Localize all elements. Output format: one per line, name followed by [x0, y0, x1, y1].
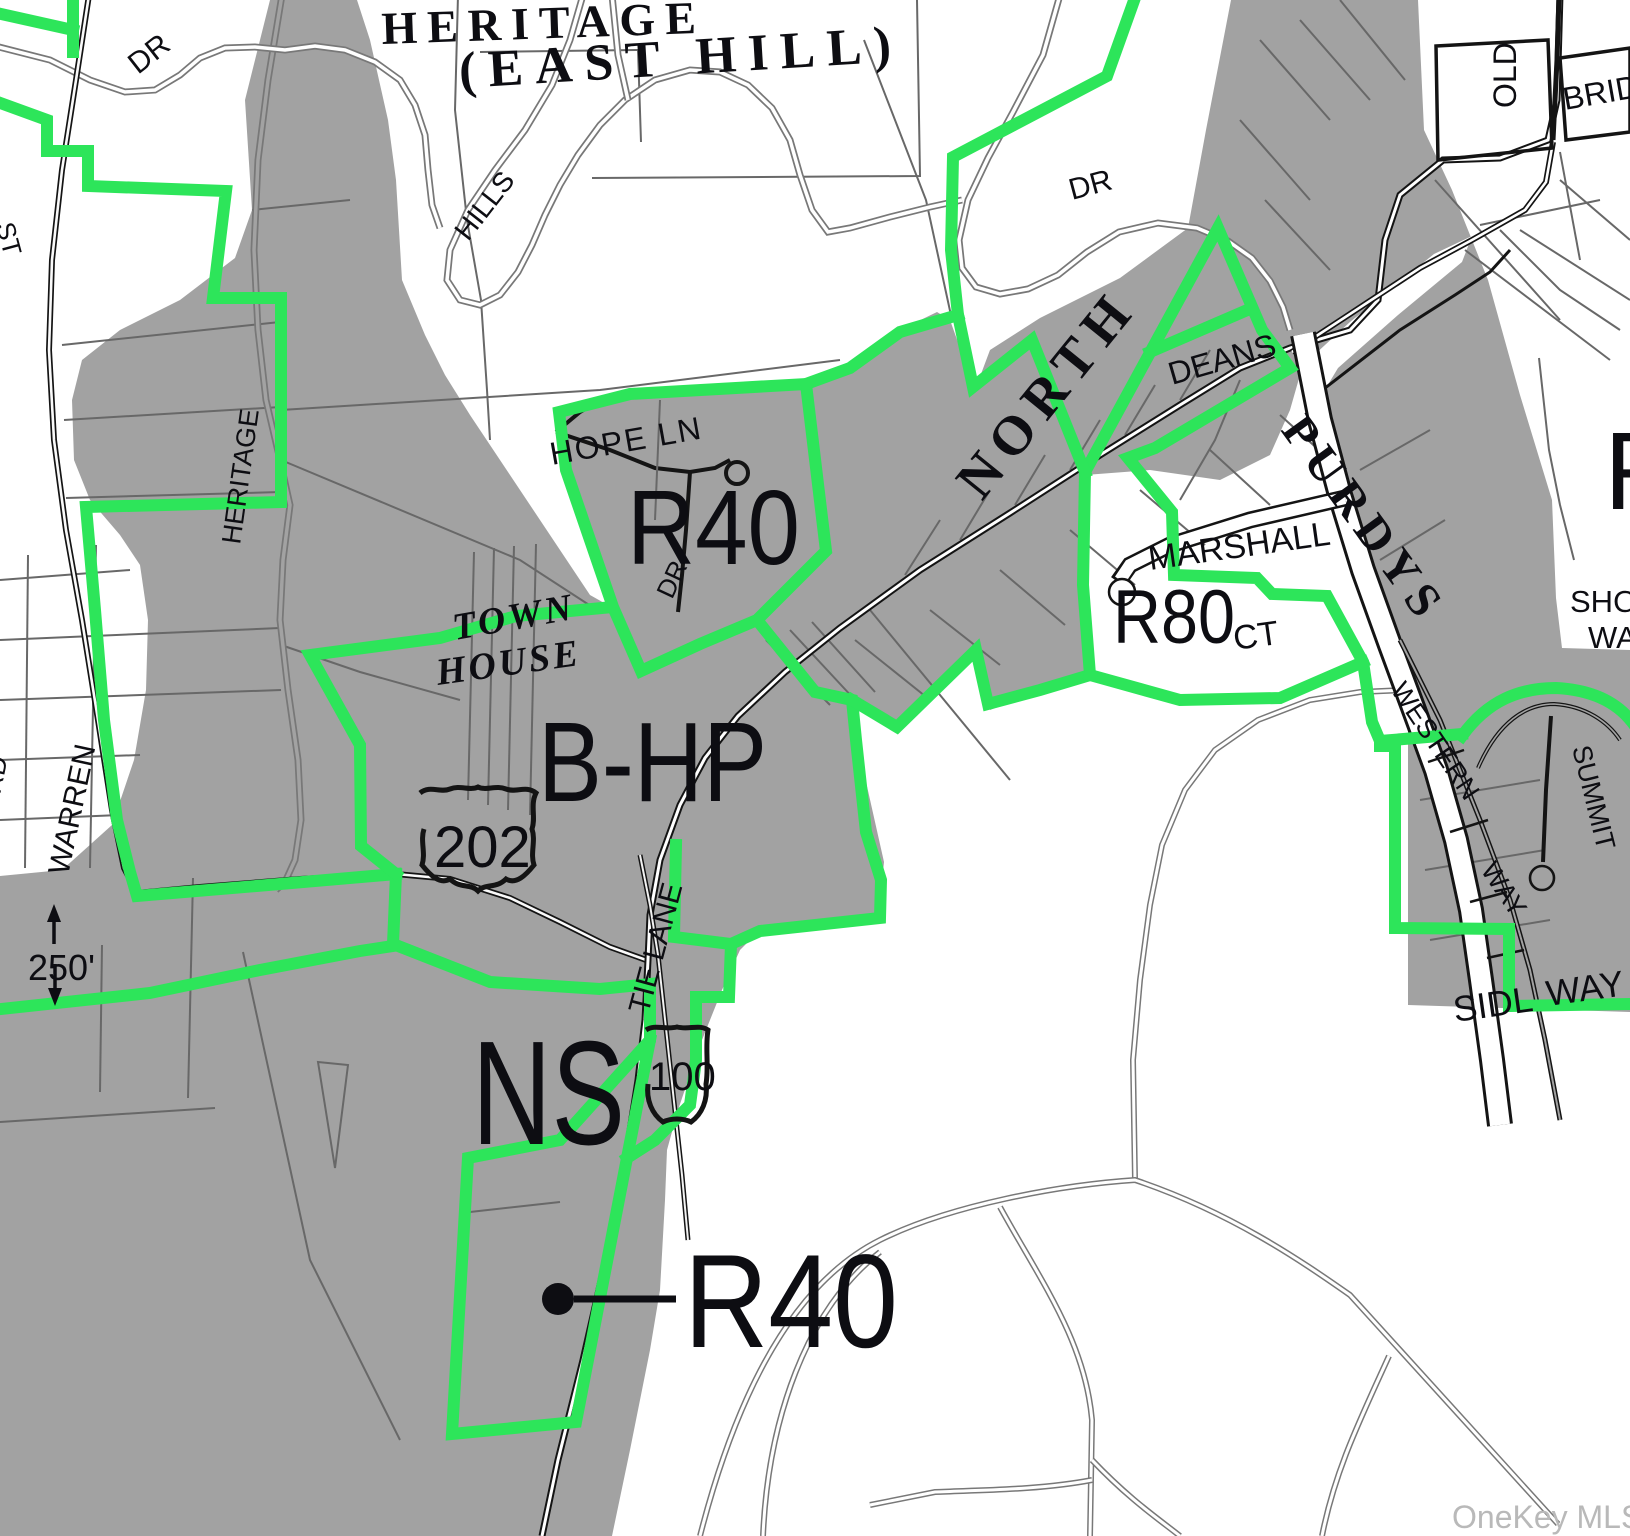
svg-text:CT: CT [1231, 614, 1281, 658]
svg-text:NS: NS [472, 1011, 625, 1176]
svg-text:R: R [1604, 410, 1630, 533]
svg-text:250': 250' [28, 947, 95, 988]
svg-text:R40: R40 [627, 469, 800, 587]
svg-text:R40: R40 [684, 1228, 898, 1376]
svg-text:WA: WA [1588, 620, 1630, 655]
svg-text:SHO: SHO [1570, 584, 1630, 619]
svg-text:OLD: OLD [1487, 42, 1523, 108]
svg-text:R80: R80 [1113, 575, 1235, 660]
svg-text:100: 100 [649, 1055, 716, 1099]
svg-text:OneKey MLS: OneKey MLS [1452, 1499, 1630, 1535]
svg-text:202: 202 [434, 815, 531, 880]
svg-text:B-HP: B-HP [538, 699, 767, 825]
